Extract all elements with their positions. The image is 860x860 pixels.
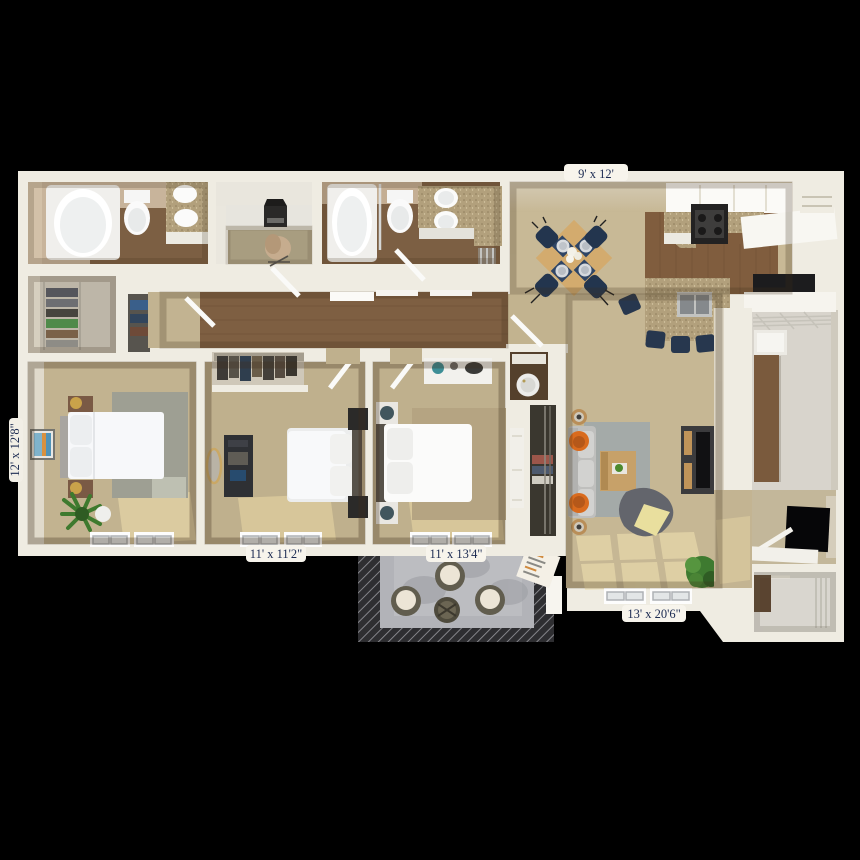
svg-text:13' x 20'6": 13' x 20'6" [627, 607, 680, 621]
svg-text:11' x 13'4": 11' x 13'4" [430, 547, 483, 561]
svg-text:9' x 12': 9' x 12' [578, 167, 614, 181]
svg-text:12' x 12'8": 12' x 12'8" [8, 423, 22, 476]
svg-text:11' x 11'2": 11' x 11'2" [250, 547, 302, 561]
